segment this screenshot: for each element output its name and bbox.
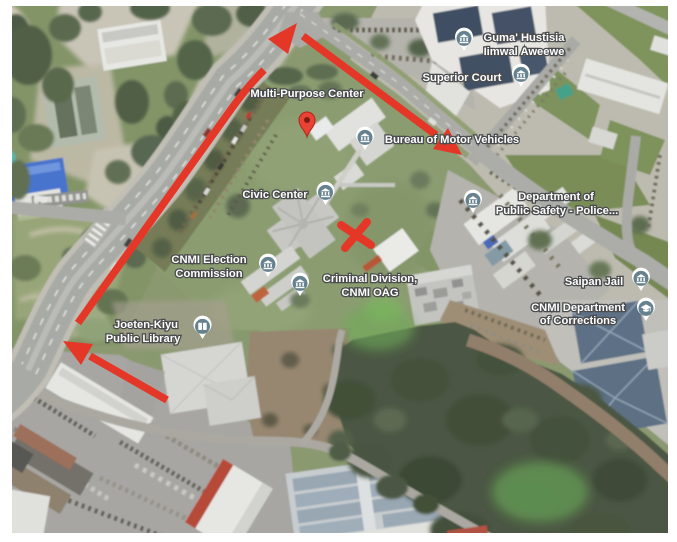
svg-text:CNMI Department: CNMI Department — [531, 302, 625, 314]
svg-text:Department of: Department of — [518, 191, 594, 203]
svg-text:Iimwal Aweewe: Iimwal Aweewe — [484, 46, 565, 58]
svg-text:Commission: Commission — [175, 268, 242, 280]
svg-text:CNMI OAG: CNMI OAG — [341, 287, 398, 299]
svg-text:Superior Court: Superior Court — [423, 72, 502, 84]
svg-text:Multi-Purpose Center: Multi-Purpose Center — [250, 88, 364, 100]
svg-text:Criminal Division,: Criminal Division, — [323, 273, 418, 285]
svg-text:CNMI Election: CNMI Election — [171, 254, 246, 266]
svg-text:Joeten-Kiyu: Joeten-Kiyu — [114, 319, 178, 331]
svg-text:Bureau of Motor Vehicles: Bureau of Motor Vehicles — [385, 134, 519, 146]
svg-text:Saipan Jail: Saipan Jail — [565, 276, 623, 288]
svg-text:Guma' Hustisia: Guma' Hustisia — [484, 32, 566, 44]
svg-text:Civic Center: Civic Center — [242, 189, 308, 201]
svg-text:of Corrections: of Corrections — [540, 315, 616, 327]
svg-text:Public Library: Public Library — [106, 333, 181, 345]
svg-text:Public Safety - Police...: Public Safety - Police... — [496, 205, 618, 217]
